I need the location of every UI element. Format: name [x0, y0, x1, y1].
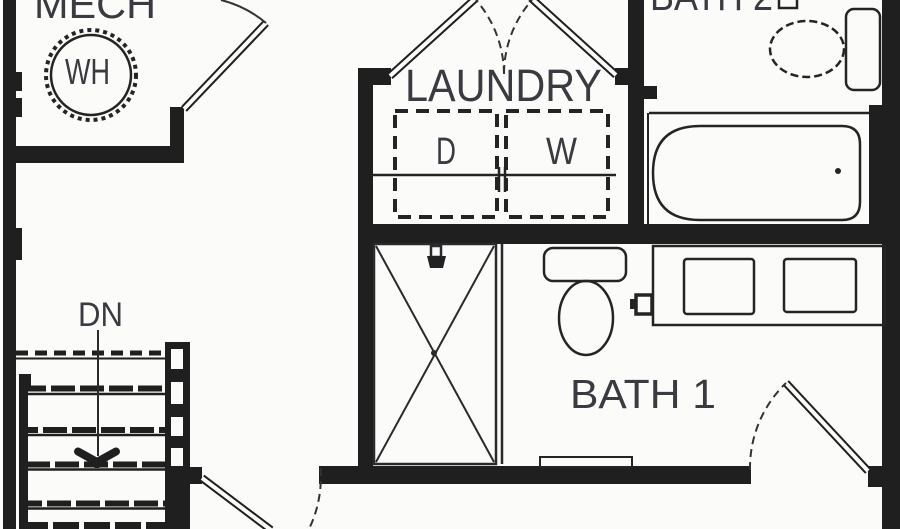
- svg-text:W: W: [546, 131, 577, 173]
- svg-text:MECH: MECH: [34, 0, 156, 27]
- svg-text:D: D: [436, 131, 456, 173]
- svg-text:WH: WH: [65, 51, 110, 92]
- svg-text:BATH 2: BATH 2: [650, 0, 773, 19]
- svg-text:LAUNDRY: LAUNDRY: [405, 60, 602, 111]
- svg-text:BATH 1: BATH 1: [570, 371, 716, 417]
- svg-text:DN: DN: [78, 296, 123, 334]
